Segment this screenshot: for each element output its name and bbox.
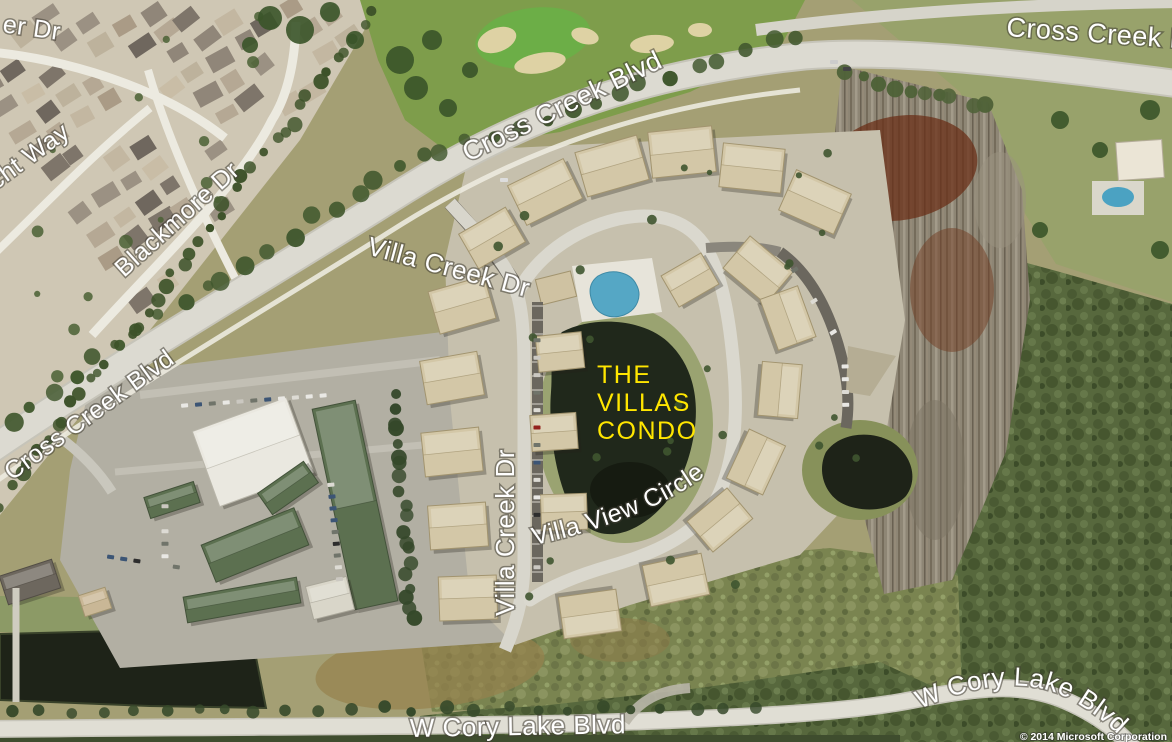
tree-cluster xyxy=(1051,111,1069,129)
tree xyxy=(345,703,358,716)
palm-tree xyxy=(785,259,793,267)
building xyxy=(421,427,487,481)
car xyxy=(534,495,541,499)
car xyxy=(319,393,326,397)
car xyxy=(830,60,838,64)
tree xyxy=(693,59,708,74)
car xyxy=(162,529,169,533)
tree xyxy=(390,403,401,414)
tree xyxy=(247,56,259,68)
palm-tree xyxy=(819,230,826,237)
tree xyxy=(72,387,86,401)
car xyxy=(264,397,271,401)
car xyxy=(500,178,508,182)
tree-cluster xyxy=(1032,222,1048,238)
copyright-attribution: © 2014 Microsoft Corporation xyxy=(1020,731,1167,742)
palm-tree xyxy=(525,592,533,600)
tree xyxy=(887,81,904,98)
car xyxy=(534,461,541,465)
tree xyxy=(329,202,345,218)
tree xyxy=(361,20,371,30)
tree-cluster xyxy=(242,37,258,53)
tree xyxy=(259,244,274,259)
car xyxy=(842,403,849,407)
car xyxy=(534,443,541,447)
tree xyxy=(33,704,45,716)
palm-tree xyxy=(796,172,802,178)
tree-cluster xyxy=(422,30,442,50)
tree xyxy=(407,610,423,626)
palm-tree xyxy=(586,336,594,344)
car xyxy=(162,554,169,558)
tree xyxy=(218,212,226,220)
palm-tree xyxy=(663,447,671,455)
tree xyxy=(691,703,704,716)
tree xyxy=(67,708,78,719)
palm-tree xyxy=(647,215,657,225)
tree xyxy=(338,48,348,58)
palm-tree xyxy=(707,170,712,175)
tree xyxy=(259,148,268,157)
palm-tree xyxy=(666,556,675,565)
tree xyxy=(84,292,93,301)
tree xyxy=(837,64,853,80)
palm-tree xyxy=(823,149,832,158)
tree xyxy=(211,272,230,291)
car xyxy=(335,565,342,570)
tree xyxy=(941,88,956,103)
community-pool xyxy=(590,272,639,317)
tree xyxy=(626,705,635,714)
tree-cluster xyxy=(462,62,478,78)
tree xyxy=(286,229,305,248)
car xyxy=(534,408,541,412)
tree-cluster xyxy=(258,6,282,30)
tree xyxy=(504,701,515,712)
tree xyxy=(662,71,677,86)
building xyxy=(530,412,582,455)
tree-cluster xyxy=(1151,241,1169,259)
building xyxy=(535,331,588,376)
palm-tree xyxy=(852,454,860,462)
tree-cluster xyxy=(386,46,414,74)
car xyxy=(333,541,340,546)
tree xyxy=(244,161,256,173)
tree xyxy=(110,340,119,349)
tree xyxy=(5,413,24,432)
car xyxy=(534,478,541,482)
tree xyxy=(247,706,260,719)
tree xyxy=(871,77,886,92)
tree xyxy=(99,707,110,718)
car xyxy=(306,394,313,398)
tree xyxy=(766,30,784,48)
tree xyxy=(163,36,170,43)
poi-label-line3: CONDO xyxy=(597,417,698,445)
tree xyxy=(312,705,324,717)
car xyxy=(336,577,343,582)
tree xyxy=(298,89,311,102)
tree xyxy=(709,54,725,70)
car xyxy=(327,482,334,487)
tree xyxy=(145,308,154,317)
car xyxy=(162,542,169,546)
tree xyxy=(363,171,382,190)
tree xyxy=(192,236,203,247)
swimming-pool xyxy=(1102,187,1134,207)
tree xyxy=(977,96,994,113)
car xyxy=(332,530,339,535)
tree xyxy=(717,703,728,714)
tree xyxy=(34,291,40,297)
car xyxy=(223,400,230,404)
tree xyxy=(303,206,320,223)
car xyxy=(534,565,541,569)
tree xyxy=(431,144,448,161)
tree xyxy=(655,704,665,714)
building xyxy=(428,502,492,554)
tree xyxy=(178,294,194,310)
car xyxy=(209,401,216,405)
tree xyxy=(128,705,139,716)
tree xyxy=(279,705,291,717)
tree xyxy=(738,43,752,57)
palm-tree xyxy=(815,442,823,450)
car xyxy=(250,398,257,402)
tree xyxy=(352,185,369,202)
palm-tree xyxy=(520,211,530,221)
tree xyxy=(417,147,431,161)
tree xyxy=(388,420,404,436)
car xyxy=(195,402,202,406)
tree-cluster xyxy=(404,76,428,100)
car xyxy=(292,395,299,399)
tree xyxy=(135,93,143,101)
palm-tree xyxy=(704,365,711,372)
palm-tree xyxy=(547,557,554,564)
palm-tree xyxy=(731,580,740,589)
palm-tree xyxy=(493,242,503,252)
tree-cluster xyxy=(1140,100,1160,120)
car xyxy=(842,377,849,381)
tree xyxy=(165,268,174,277)
tree xyxy=(366,6,376,16)
car xyxy=(236,399,243,403)
car xyxy=(329,506,336,511)
tree xyxy=(195,704,205,714)
tree xyxy=(403,541,415,553)
aerial-map-canvas[interactable]: er Dr cht Way Blackmore Dr Cross Creek B… xyxy=(0,0,1172,742)
tree xyxy=(46,384,63,401)
tree xyxy=(99,360,109,370)
car xyxy=(843,67,851,71)
tree xyxy=(70,370,84,384)
car xyxy=(162,504,169,508)
palm-tree xyxy=(831,414,838,421)
car xyxy=(334,553,341,558)
tree xyxy=(32,226,44,238)
palm-tree xyxy=(576,265,585,274)
tree xyxy=(788,31,802,45)
palm-tree xyxy=(592,453,600,461)
poi-label-line2: VILLAS xyxy=(597,389,691,417)
car xyxy=(534,338,541,342)
tree xyxy=(236,256,255,275)
car xyxy=(842,390,849,394)
tree xyxy=(391,389,401,399)
sand-bunker xyxy=(688,23,712,37)
tree xyxy=(918,86,932,100)
tree xyxy=(183,248,196,261)
palm-tree xyxy=(681,164,688,171)
tree xyxy=(378,700,391,713)
map-viewport[interactable]: er Dr cht Way Blackmore Dr Cross Creek B… xyxy=(0,0,1172,742)
poi-label-line1: THE xyxy=(597,361,652,389)
building xyxy=(718,143,788,198)
tree xyxy=(400,509,413,522)
tree xyxy=(162,705,174,717)
car xyxy=(278,396,285,400)
tree xyxy=(68,324,80,336)
tree xyxy=(859,71,869,81)
gray-streak xyxy=(974,152,1026,248)
tree xyxy=(206,224,214,232)
tree xyxy=(93,369,102,378)
tree xyxy=(398,567,412,581)
tree xyxy=(905,85,918,98)
car xyxy=(181,403,188,407)
tree xyxy=(84,348,101,365)
tree xyxy=(220,704,230,714)
tree xyxy=(321,67,331,77)
building xyxy=(555,585,622,639)
tree xyxy=(393,486,405,498)
car xyxy=(534,391,541,395)
car xyxy=(330,518,337,523)
house xyxy=(1116,139,1165,180)
tree xyxy=(287,117,302,132)
tree xyxy=(151,293,165,307)
tree xyxy=(24,402,35,413)
car xyxy=(328,494,335,499)
car xyxy=(534,356,541,360)
tree-cluster xyxy=(439,99,457,117)
tree-cluster xyxy=(1092,142,1108,158)
car xyxy=(534,426,541,430)
tree xyxy=(199,136,209,146)
tree xyxy=(134,322,145,333)
car xyxy=(534,513,541,517)
tree xyxy=(6,705,18,717)
tree xyxy=(51,370,63,382)
tree-cluster xyxy=(286,16,314,44)
tree-cluster xyxy=(346,31,364,49)
tree xyxy=(392,456,406,470)
tree xyxy=(393,439,403,449)
tree xyxy=(394,160,406,172)
car xyxy=(842,364,849,368)
street-label-w-cory-lake-blvd-south: W Cory Lake Blvd xyxy=(410,709,627,742)
building xyxy=(753,361,802,422)
tree xyxy=(392,469,407,484)
burnt-patch xyxy=(910,228,994,352)
tree-cluster xyxy=(320,2,340,22)
tree xyxy=(159,279,174,294)
car xyxy=(534,373,541,377)
street-label-villa-creek-dr-south: Villa Creek Dr xyxy=(490,449,520,616)
palm-tree xyxy=(718,431,727,440)
tree xyxy=(750,702,762,714)
